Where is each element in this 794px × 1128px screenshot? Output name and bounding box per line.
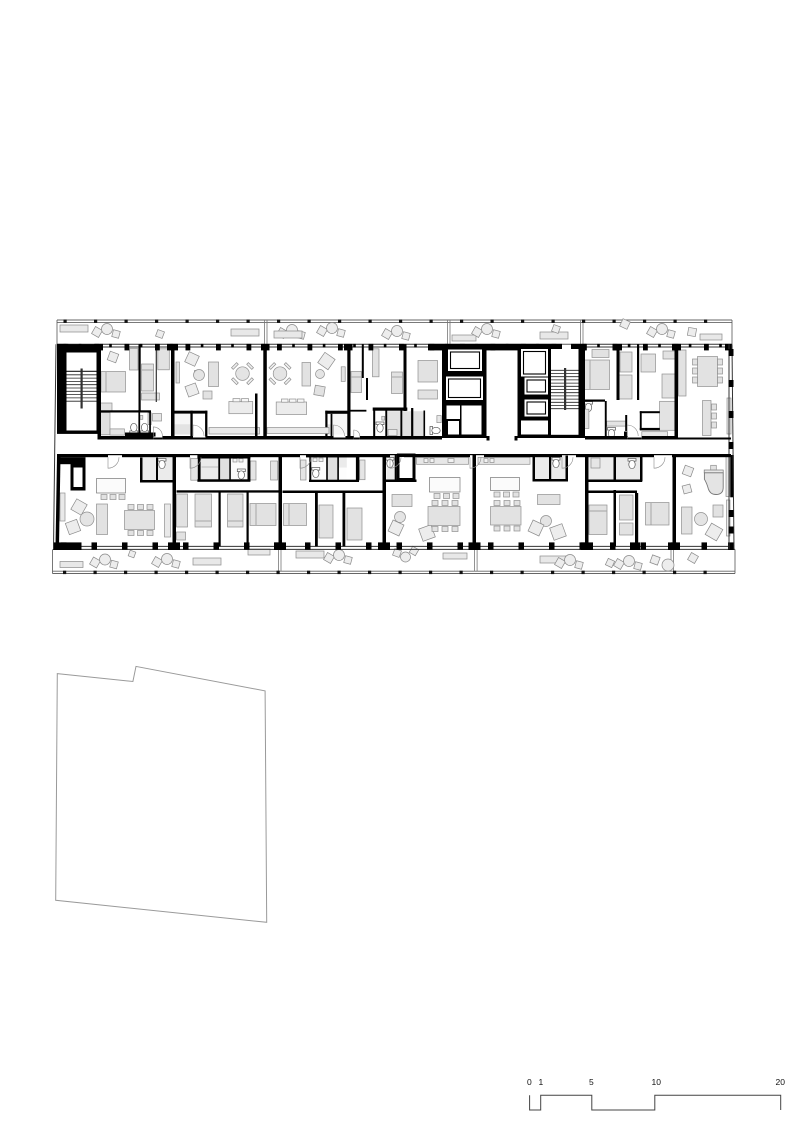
svg-text:10: 10 (652, 1077, 662, 1087)
svg-text:0: 0 (527, 1077, 532, 1087)
svg-text:5: 5 (589, 1077, 594, 1087)
svg-text:20: 20 (776, 1077, 786, 1087)
svg-text:1: 1 (539, 1077, 544, 1087)
